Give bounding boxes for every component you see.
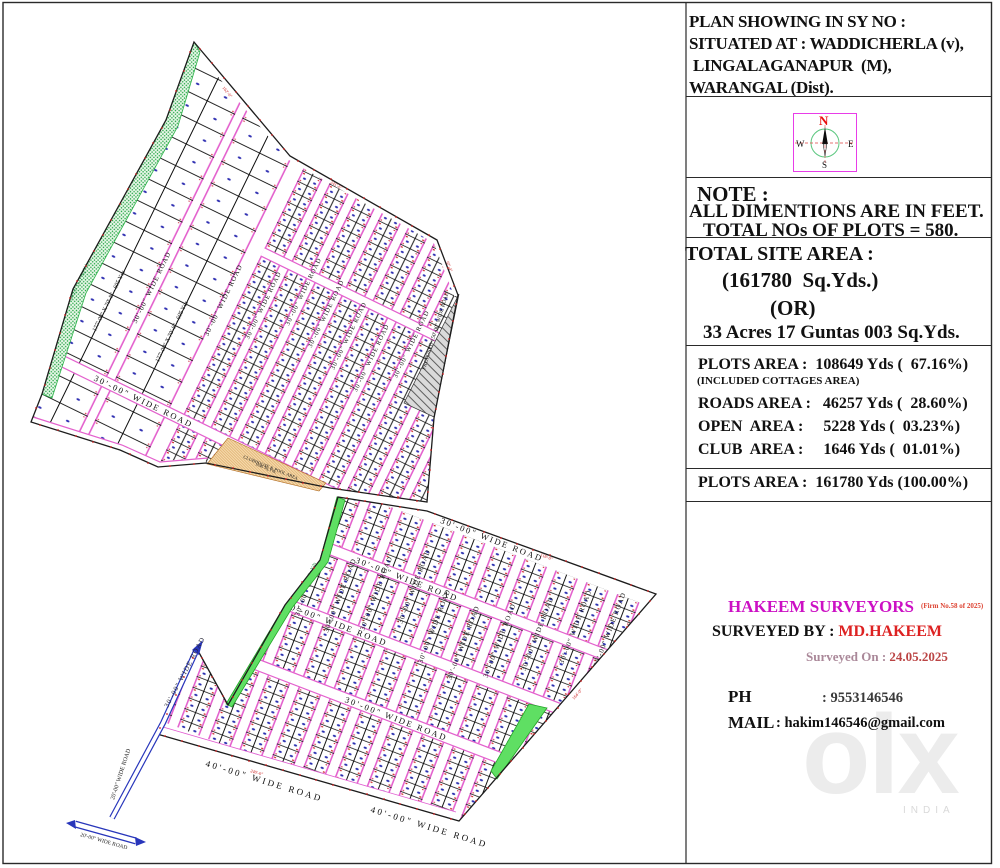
svg-text:N: N bbox=[819, 113, 829, 128]
svg-text:S: S bbox=[822, 160, 827, 170]
svg-text:W: W bbox=[796, 139, 805, 149]
svg-text:20'-00" WIDE ROAD: 20'-00" WIDE ROAD bbox=[110, 748, 132, 801]
svg-text:30'-00" WIDE ROAD: 30'-00" WIDE ROAD bbox=[273, 501, 309, 578]
svg-text:177'-00" X 70'-8" - 605 Yds: 177'-00" X 70'-8" - 605 Yds bbox=[22, 251, 57, 315]
svg-text:E: E bbox=[848, 139, 854, 149]
svg-text:30'-00" WIDE ROAD: 30'-00" WIDE ROAD bbox=[453, 322, 492, 392]
